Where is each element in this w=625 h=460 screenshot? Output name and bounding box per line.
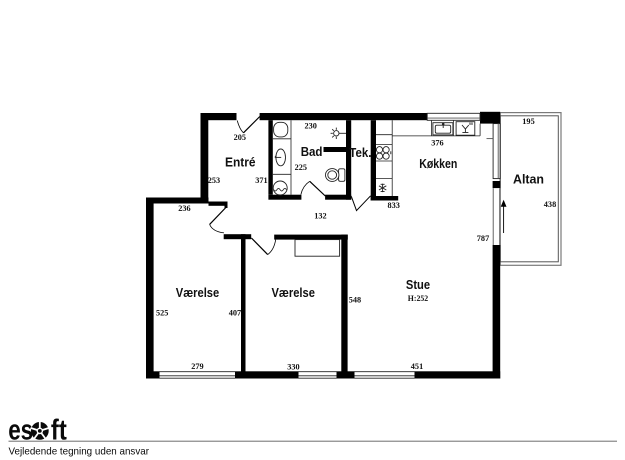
svg-text:H:252: H:252	[408, 293, 428, 303]
svg-text:Værelse: Værelse	[272, 285, 315, 300]
svg-text:833: 833	[388, 200, 400, 210]
svg-text:Værelse: Værelse	[176, 285, 219, 300]
svg-text:132: 132	[314, 211, 326, 221]
svg-text:371: 371	[255, 175, 267, 185]
svg-text:230: 230	[305, 121, 317, 131]
svg-text:Stue: Stue	[406, 277, 430, 292]
svg-text:438: 438	[544, 199, 556, 209]
svg-text:Tek.: Tek.	[349, 145, 371, 160]
svg-text:787: 787	[477, 233, 490, 243]
svg-text:407: 407	[229, 307, 242, 317]
svg-text:00: 00	[469, 122, 473, 126]
svg-text:279: 279	[191, 361, 203, 371]
svg-text:548: 548	[349, 295, 361, 305]
svg-text:Køkken: Køkken	[419, 156, 457, 171]
svg-text:205: 205	[234, 132, 246, 142]
svg-text:Altan: Altan	[513, 172, 544, 187]
svg-text:330: 330	[287, 362, 299, 372]
svg-text:525: 525	[156, 307, 168, 317]
svg-text:Bad: Bad	[301, 144, 323, 159]
svg-text:236: 236	[178, 203, 190, 213]
svg-text:376: 376	[431, 138, 443, 148]
svg-text:Vejledende tegning uden ansvar: Vejledende tegning uden ansvar	[9, 447, 150, 458]
svg-text:Entré: Entré	[225, 155, 256, 170]
svg-text:253: 253	[208, 175, 220, 185]
svg-text:225: 225	[295, 162, 307, 172]
svg-text:195: 195	[522, 116, 534, 126]
svg-text:451: 451	[411, 361, 423, 371]
